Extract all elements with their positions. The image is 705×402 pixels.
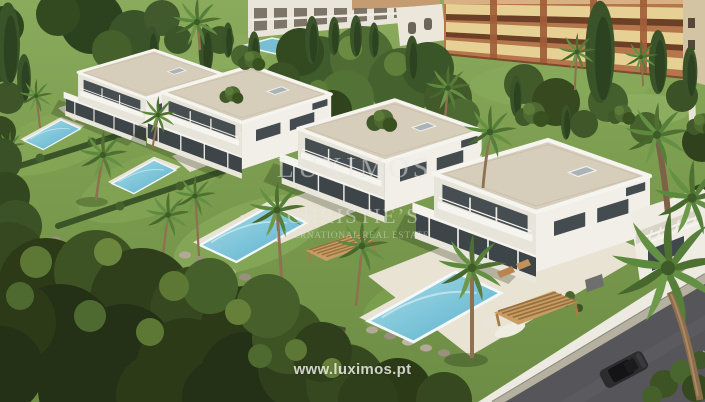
scene-svg — [0, 0, 705, 402]
property-aerial-render: LUXIMOS CHRISTIE’S INTERNATIONAL REAL ES… — [0, 0, 705, 402]
